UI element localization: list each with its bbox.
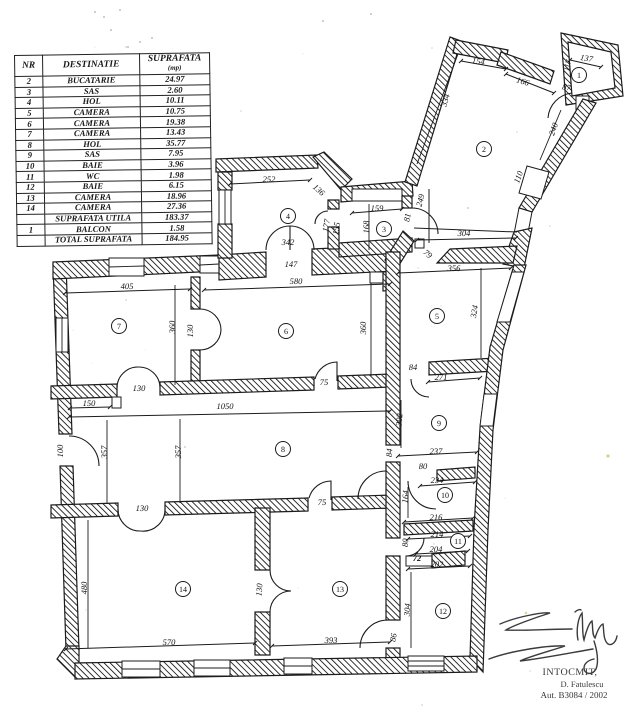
svg-text:480: 480 [79, 581, 89, 595]
svg-text:356: 356 [447, 263, 462, 273]
svg-text:154: 154 [471, 55, 486, 67]
svg-text:72: 72 [413, 553, 422, 563]
svg-text:5: 5 [435, 312, 439, 321]
svg-text:150: 150 [83, 398, 97, 408]
svg-text:D. Fatulescu: D. Fatulescu [561, 679, 605, 689]
svg-text:10: 10 [441, 491, 449, 500]
svg-text:164: 164 [399, 489, 410, 503]
svg-text:1050: 1050 [217, 401, 235, 411]
svg-text:130: 130 [136, 503, 150, 513]
svg-text:357: 357 [99, 445, 109, 460]
svg-text:204: 204 [430, 544, 444, 554]
svg-text:214: 214 [431, 529, 445, 539]
svg-text:202: 202 [431, 559, 445, 569]
svg-text:75: 75 [318, 497, 327, 507]
svg-text:4: 4 [286, 212, 290, 221]
svg-text:84: 84 [409, 362, 418, 372]
svg-text:393: 393 [324, 635, 338, 645]
svg-text:302: 302 [393, 412, 404, 427]
svg-text:357: 357 [173, 445, 183, 460]
svg-text:9: 9 [437, 419, 441, 428]
svg-text:12: 12 [439, 607, 447, 616]
svg-text:11: 11 [454, 537, 462, 546]
svg-text:342: 342 [281, 237, 296, 247]
svg-text:360: 360 [358, 321, 368, 336]
svg-text:580: 580 [290, 276, 304, 286]
svg-text:100: 100 [55, 444, 65, 458]
svg-text:1: 1 [577, 71, 581, 80]
svg-text:80: 80 [419, 461, 428, 471]
svg-text:6: 6 [284, 327, 288, 336]
svg-text:80: 80 [400, 537, 411, 547]
svg-text:130: 130 [253, 582, 264, 596]
svg-text:159: 159 [371, 203, 385, 213]
svg-text:237: 237 [430, 446, 444, 456]
svg-text:234: 234 [431, 475, 445, 485]
svg-text:304: 304 [401, 602, 412, 617]
svg-text:Aut. B3084 / 2002: Aut. B3084 / 2002 [540, 690, 607, 700]
svg-text:81: 81 [401, 212, 412, 222]
svg-text:304: 304 [457, 228, 472, 238]
svg-text:13: 13 [336, 585, 344, 594]
svg-text:INTOCMIT,: INTOCMIT, [543, 667, 598, 678]
svg-text:405: 405 [121, 281, 134, 291]
svg-text:7: 7 [117, 322, 121, 331]
svg-text:570: 570 [163, 637, 177, 647]
svg-text:271: 271 [435, 372, 448, 382]
svg-text:3: 3 [382, 225, 386, 234]
svg-text:8: 8 [281, 445, 285, 454]
svg-text:2: 2 [482, 145, 486, 154]
svg-text:147: 147 [285, 259, 299, 269]
svg-text:130: 130 [185, 324, 195, 338]
svg-text:130: 130 [133, 383, 147, 393]
svg-text:360: 360 [167, 320, 177, 335]
svg-text:252: 252 [263, 174, 277, 184]
svg-text:84: 84 [384, 447, 395, 457]
svg-text:14: 14 [179, 585, 187, 594]
svg-text:75: 75 [320, 377, 329, 387]
svg-text:216: 216 [430, 512, 444, 522]
svg-text:168: 168 [361, 220, 371, 234]
